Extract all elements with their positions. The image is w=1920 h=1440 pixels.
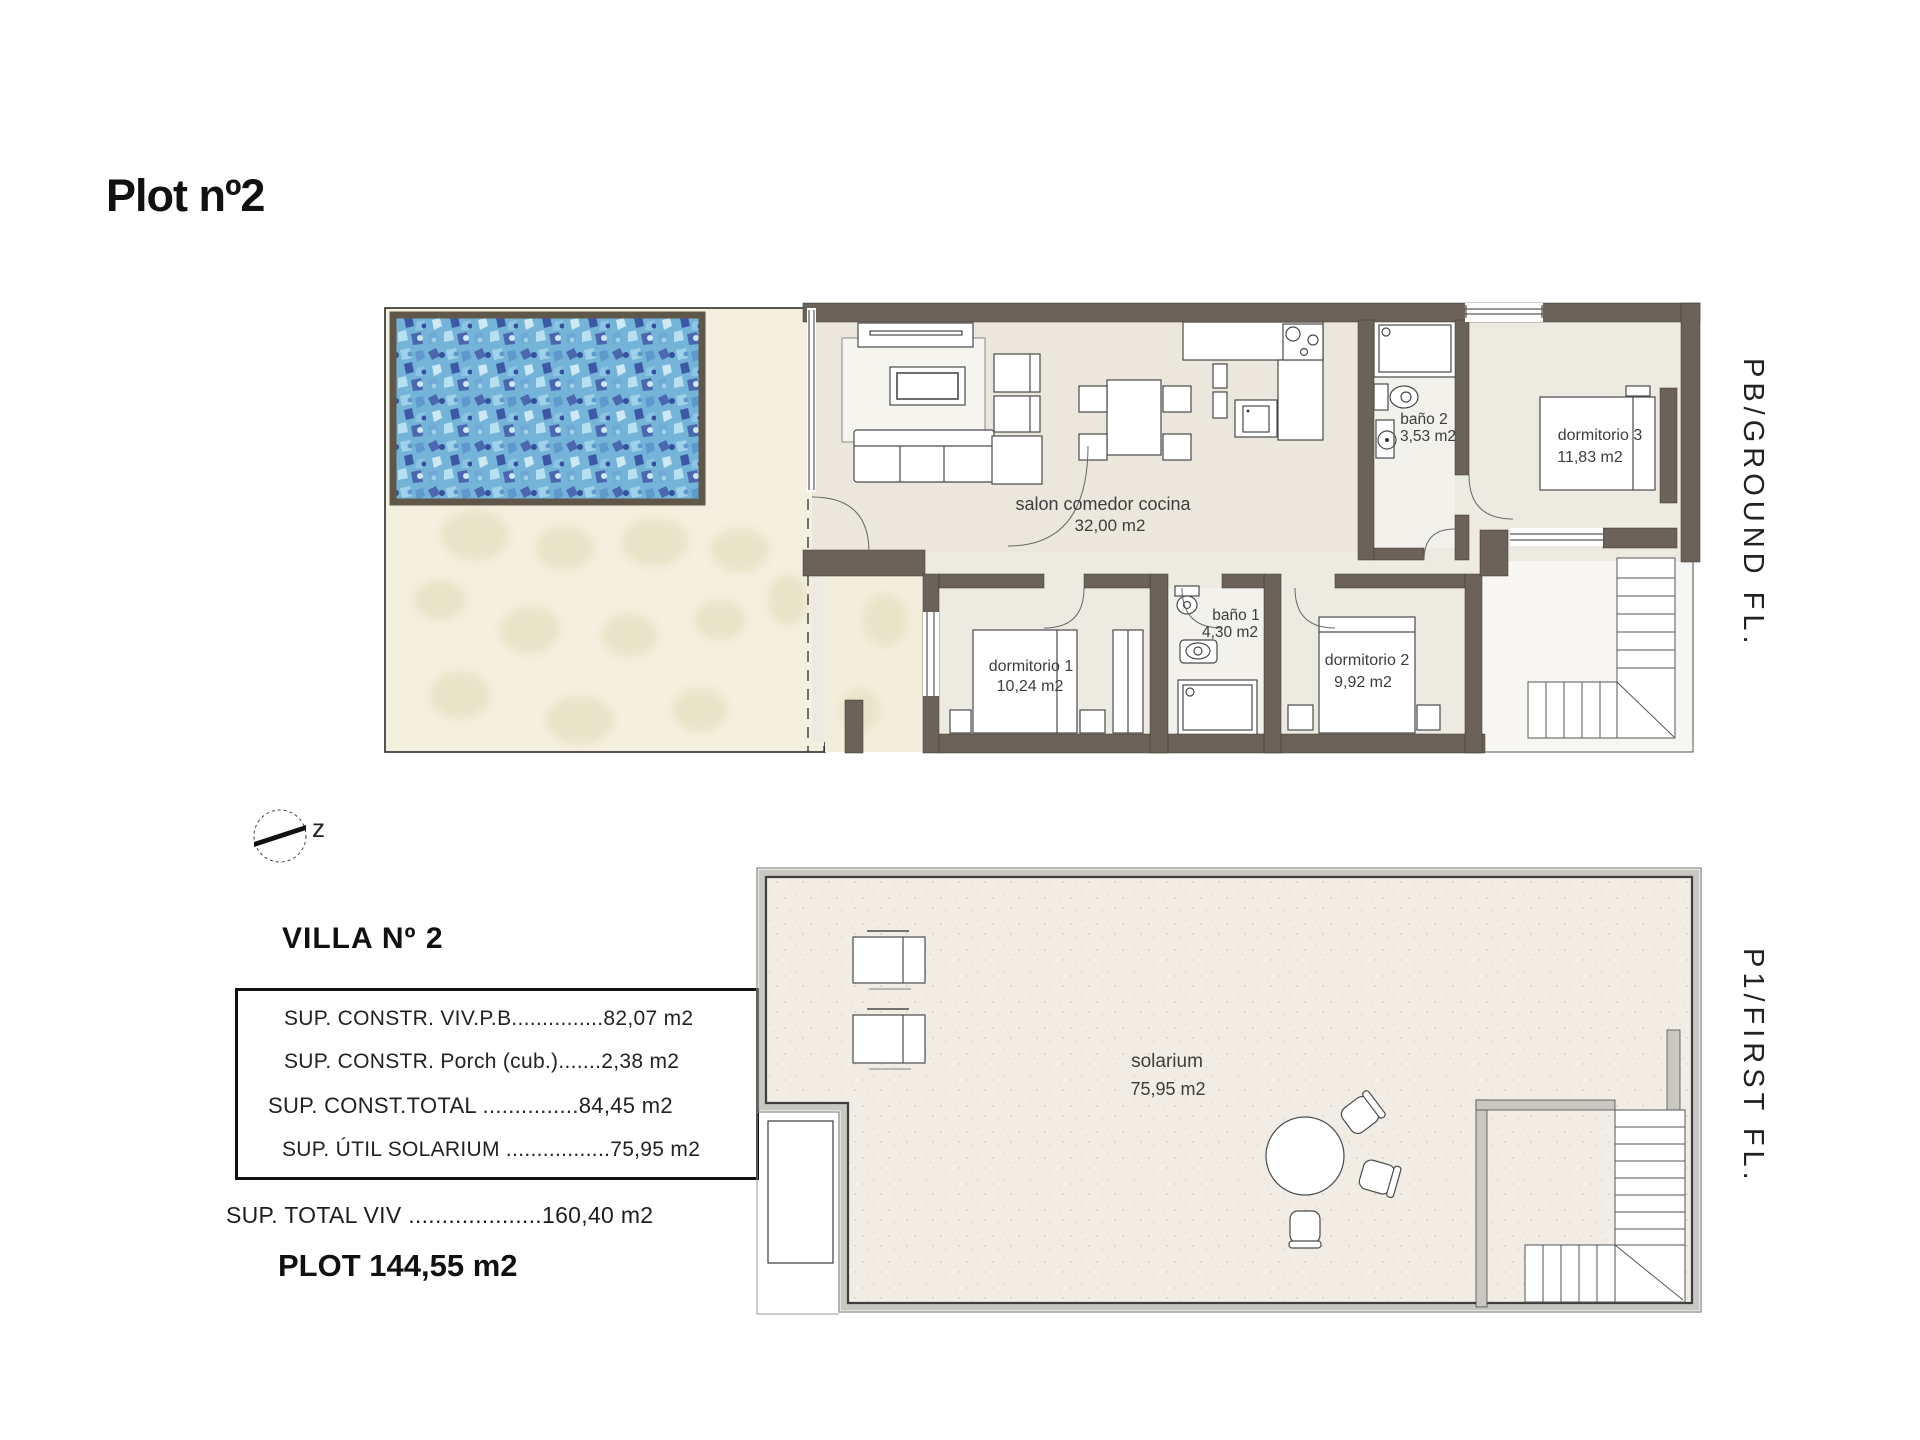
villa-heading: VILLA Nº 2 xyxy=(282,922,444,956)
ground-floor-plan: salon comedor cocina 32,00 m2 dormitorio… xyxy=(380,300,1705,760)
chair xyxy=(1289,1211,1321,1248)
area-table: SUP. CONSTR. VIV.P.B...............82,07… xyxy=(235,988,759,1180)
sofa xyxy=(854,430,994,482)
room-area-solarium: 75,95 m2 xyxy=(1130,1079,1205,1099)
shower xyxy=(1178,680,1257,735)
nightstand xyxy=(1080,710,1105,733)
sun-lounger xyxy=(853,931,925,989)
plot-area-line: PLOT 144,55 m2 xyxy=(278,1248,518,1284)
sun-lounger xyxy=(853,1009,925,1069)
table-row: SUP. CONSTR. VIV.P.B...............82,07… xyxy=(238,1007,756,1031)
room-area-bano2: 3,53 m2 xyxy=(1400,428,1456,445)
room-label-dormitorio1: dormitorio 1 xyxy=(989,658,1074,675)
room-area-dormitorio3: 11,83 m2 xyxy=(1557,449,1623,466)
first-floor-side-label: P1/FIRST FL. xyxy=(1736,948,1769,1185)
room-label-dormitorio2: dormitorio 2 xyxy=(1325,652,1410,669)
terrace xyxy=(385,308,825,752)
toilet xyxy=(1374,384,1388,410)
total-area-line: SUP. TOTAL VIV ....................160,4… xyxy=(226,1202,653,1229)
room-area-dormitorio1: 10,24 m2 xyxy=(997,678,1064,695)
page-title: Plot nº2 xyxy=(106,170,264,222)
plan-sheet: Plot nº2 xyxy=(0,0,1920,1440)
sink xyxy=(1376,420,1394,458)
nightstand xyxy=(1626,386,1650,396)
porch-roof-below xyxy=(768,1121,833,1263)
nightstand xyxy=(1288,705,1313,730)
room-area-dormitorio2: 9,92 m2 xyxy=(1334,674,1392,691)
room-label-salon: salon comedor cocina xyxy=(1015,494,1191,514)
ottoman xyxy=(992,436,1042,484)
room-area-bano1: 4,30 m2 xyxy=(1202,624,1258,641)
table-row: SUP. CONST.TOTAL ...............84,45 m2 xyxy=(238,1093,756,1119)
room-label-bano2: baño 2 xyxy=(1400,411,1447,428)
toilet xyxy=(1175,586,1199,596)
round-table xyxy=(1266,1117,1344,1195)
nightstand xyxy=(950,710,971,733)
compass-icon: z xyxy=(238,798,348,878)
room-label-solarium: solarium xyxy=(1131,1051,1203,1072)
nightstand xyxy=(1417,705,1440,730)
room-label-bano1: baño 1 xyxy=(1212,607,1259,624)
ground-floor-side-label: PB/GROUND FL. xyxy=(1736,358,1769,649)
armchair xyxy=(994,354,1040,392)
room-area-salon: 32,00 m2 xyxy=(1075,516,1146,535)
shower xyxy=(1374,320,1456,377)
table-row: SUP. ÚTIL SOLARIUM .................75,9… xyxy=(238,1138,756,1162)
table-row: SUP. CONSTR. Porch (cub.).......2,38 m2 xyxy=(238,1050,756,1074)
armchair xyxy=(994,396,1040,432)
first-floor-plan: solarium 75,95 m2 xyxy=(755,865,1705,1320)
north-label: z xyxy=(312,813,325,843)
swimming-pool xyxy=(393,315,702,502)
kitchen-island xyxy=(1235,400,1277,437)
north-needle xyxy=(254,825,306,847)
room-label-dormitorio3: dormitorio 3 xyxy=(1558,427,1643,444)
